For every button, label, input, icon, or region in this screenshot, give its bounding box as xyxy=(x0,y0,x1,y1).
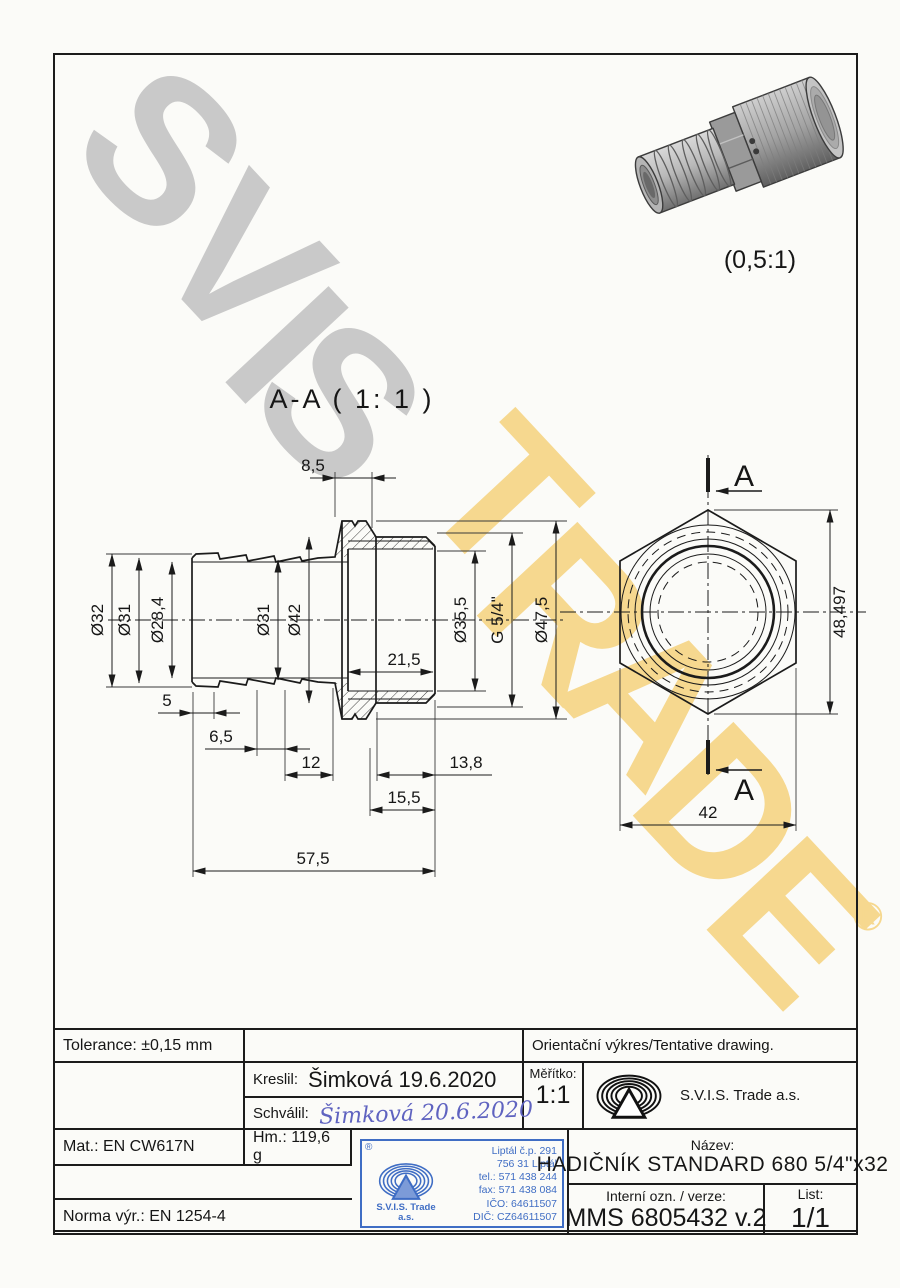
logo-triangle xyxy=(613,1089,644,1117)
dimension-labels: Ø32 Ø31 Ø28,4 Ø31 Ø42 Ø35,5 G 5/4" Ø47,5… xyxy=(88,456,551,868)
stamp-logo-triangle xyxy=(393,1176,419,1199)
company-stamp: ® S.V.I.S. Trade a.s. Liptál č.p. 291 xyxy=(360,1139,564,1228)
schvalil-cell: Schválil: Šimková 20.6.2020 xyxy=(245,1098,524,1130)
dim-label-flange-od: Ø47,5 xyxy=(532,597,551,643)
dim-label-pitch1: 5 xyxy=(162,691,171,710)
weight-cell: Hm.: 119,6 g xyxy=(245,1130,352,1166)
dim-label-tube-od: Ø31 xyxy=(254,604,273,636)
dim-label-thread-root: Ø42 xyxy=(285,604,304,636)
schvalil-label: Schválil: xyxy=(253,1105,309,1122)
dim-label-socket-len: 15,5 xyxy=(387,788,420,807)
list-label: List: xyxy=(798,1186,824,1202)
kreslil-value: Šimková 19.6.2020 xyxy=(308,1067,496,1093)
stamp-line: fax: 571 438 084 xyxy=(448,1184,557,1197)
dim-label-socket-id: Ø35,5 xyxy=(451,597,470,643)
stamp-left: S.V.I.S. Trade a.s. xyxy=(362,1141,448,1226)
extension-lines xyxy=(106,472,567,877)
dim-label-barb-mid: Ø31 xyxy=(115,604,134,636)
dimension-lines xyxy=(112,478,556,871)
meritko-value: 1:1 xyxy=(536,1081,571,1110)
kreslil-cell: Kreslil: Šimková 19.6.2020 xyxy=(245,1063,524,1098)
material-cell: Mat.: EN CW617N xyxy=(55,1130,245,1166)
interni-cell: Interní ozn. / verze: MMS 6805432 v.2 xyxy=(569,1185,765,1234)
hatch-top xyxy=(335,521,433,557)
company-name: S.V.I.S. Trade a.s. xyxy=(680,1087,800,1104)
nazev-cell: Název: HADIČNÍK STANDARD 680 5/4"x32 xyxy=(569,1130,856,1185)
dim-label-barb-od: Ø32 xyxy=(88,604,107,636)
render-scale-label: (0,5:1) xyxy=(724,246,796,274)
dim-label-across-flats: 42 xyxy=(699,803,718,822)
list-value: 1/1 xyxy=(791,1202,830,1234)
schvalil-signature: Šimková 20.6.2020 xyxy=(318,1097,533,1129)
stamp-company-line2: a.s. xyxy=(376,1213,435,1223)
end-view-labels: 48,497 42 A A xyxy=(699,460,849,822)
dim-label-pitch3: 12 xyxy=(302,753,321,772)
empty-cell-bottom xyxy=(55,1166,352,1200)
kreslil-label: Kreslil: xyxy=(253,1071,298,1088)
empty-cell-left xyxy=(55,1063,245,1130)
tolerance-cell: Tolerance: ±0,15 mm xyxy=(55,1030,245,1063)
section-title: A-A ( 1: 1 ) xyxy=(269,384,434,414)
tolerance-text: Tolerance: ±0,15 mm xyxy=(63,1037,212,1055)
dim-label-socket-depth: 21,5 xyxy=(387,650,420,669)
section-view: Ø32 Ø31 Ø28,4 Ø31 Ø42 Ø35,5 G 5/4" Ø47,5… xyxy=(88,456,567,877)
stamp-registered: ® xyxy=(365,1142,372,1155)
dim-label-bore: Ø28,4 xyxy=(148,597,167,643)
empty-cell-top xyxy=(245,1030,524,1063)
hatch-bottom xyxy=(335,683,433,719)
title-block: Tolerance: ±0,15 mm Orientační výkres/Te… xyxy=(53,1028,858,1232)
norma-cell: Norma výr.: EN 1254-4 xyxy=(55,1200,352,1234)
meritko-label: Měřítko: xyxy=(530,1066,577,1081)
nazev-label: Název: xyxy=(691,1137,735,1153)
dim-label-total-len: 57,5 xyxy=(296,849,329,868)
dim-label-thread: G 5/4" xyxy=(488,596,507,644)
cut-label-top: A xyxy=(734,460,754,493)
cut-label-bottom: A xyxy=(734,774,754,807)
stamp-cell: ® S.V.I.S. Trade a.s. Liptál č.p. 291 xyxy=(352,1130,569,1234)
dim-label-across-corners: 48,497 xyxy=(830,586,849,638)
orientacni-text: Orientační výkres/Tentative drawing. xyxy=(532,1037,774,1054)
drawing-sheet: S V I S T R A D E ® xyxy=(0,0,900,1288)
weight-text: Hm.: 119,6 g xyxy=(253,1129,342,1165)
part-render-3d: (0,5:1) xyxy=(625,74,850,274)
dim-label-top-width: 8,5 xyxy=(301,456,325,475)
company-logo xyxy=(592,1069,666,1123)
interni-label: Interní ozn. / verze: xyxy=(606,1188,726,1204)
stamp-line: DIČ: CZ64611507 xyxy=(448,1211,557,1224)
list-cell: List: 1/1 xyxy=(765,1185,856,1234)
company-cell: S.V.I.S. Trade a.s. xyxy=(584,1063,856,1130)
orientacni-cell: Orientační výkres/Tentative drawing. xyxy=(524,1030,856,1063)
interni-value: MMS 6805432 v.2 xyxy=(565,1204,766,1233)
stamp-line: IČO: 64611507 xyxy=(448,1198,557,1211)
dim-label-pitch2: 6,5 xyxy=(209,727,233,746)
norma-text: Norma výr.: EN 1254-4 xyxy=(63,1208,226,1226)
stamp-logo xyxy=(375,1159,437,1203)
dim-label-thread-len: 13,8 xyxy=(449,753,482,772)
meritko-cell: Měřítko: 1:1 xyxy=(524,1063,584,1130)
nazev-value: HADIČNÍK STANDARD 680 5/4"x32 xyxy=(537,1153,889,1177)
end-view: 48,497 42 A A xyxy=(560,455,866,831)
cut-arrows xyxy=(716,491,762,770)
material-text: Mat.: EN CW617N xyxy=(63,1138,195,1156)
